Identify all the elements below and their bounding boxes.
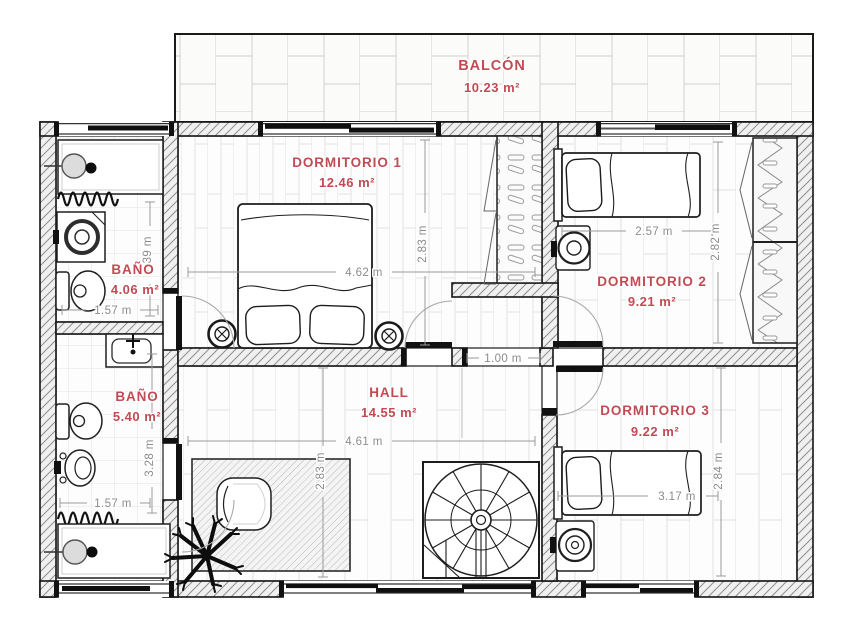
room-label-dormitorio3: DORMITORIO 3 bbox=[600, 403, 710, 418]
window-bathroom2 bbox=[54, 581, 174, 597]
balcony-door-dormitorio2 bbox=[596, 122, 737, 136]
drain-icon bbox=[87, 547, 98, 558]
headboard bbox=[554, 447, 562, 519]
wall-bottom-seg bbox=[170, 581, 283, 597]
floor-plan: 2.39 m 1.57 m 2.83 m 4.62 m 2.57 m 2.82 … bbox=[0, 0, 854, 626]
door-leaf bbox=[176, 296, 182, 350]
dimension-label: 2.83 m bbox=[315, 452, 327, 490]
balcony-door-dormitorio1 bbox=[258, 122, 441, 136]
door-leaf bbox=[553, 341, 603, 347]
wall-bath-vertical bbox=[163, 350, 178, 443]
dimension-label: 1.57 m bbox=[94, 305, 132, 317]
dimension-pasillo-width: 1.00 m bbox=[467, 353, 540, 365]
toilet-icon bbox=[56, 403, 102, 439]
chair bbox=[217, 478, 271, 530]
room-area-hall: 14.55 m² bbox=[361, 405, 417, 420]
headboard bbox=[554, 149, 562, 221]
dimension-label: 4.62 m bbox=[345, 267, 383, 279]
dimension-label: 1.57 m bbox=[94, 498, 132, 510]
wall-d1-hall-stub bbox=[540, 348, 553, 366]
bidet-icon bbox=[54, 450, 95, 486]
room-area-dormitorio3: 9.22 m² bbox=[631, 424, 679, 439]
dimension-label: 4.61 m bbox=[345, 436, 383, 448]
desk-chair-stool bbox=[551, 226, 590, 270]
door-leaf bbox=[556, 366, 603, 372]
wall-top-seg bbox=[733, 122, 813, 136]
wall-d1-hall bbox=[178, 348, 406, 366]
single-bed bbox=[554, 447, 701, 519]
room-area-bano1: 4.06 m² bbox=[111, 282, 159, 297]
bedside-stool bbox=[209, 321, 236, 348]
stool-icon bbox=[550, 521, 594, 571]
dimension-label: 3.17 m bbox=[658, 491, 696, 503]
pillow bbox=[566, 158, 603, 212]
spiral-staircase bbox=[423, 462, 539, 578]
wall-right bbox=[797, 122, 813, 597]
wall-closet-bottom bbox=[452, 283, 558, 297]
washing-machine-icon bbox=[53, 212, 105, 262]
dimension-label: 2.82 m bbox=[710, 223, 722, 261]
drain-icon bbox=[86, 163, 97, 174]
room-label-bano1: BAÑO bbox=[111, 262, 154, 277]
wall-left bbox=[40, 122, 56, 597]
room-label-bano2: BAÑO bbox=[115, 389, 158, 404]
pillow bbox=[245, 305, 300, 345]
room-label-balcon: BALCÓN bbox=[458, 56, 525, 74]
room-label-dormitorio1: DORMITORIO 1 bbox=[292, 155, 402, 170]
wall-bath-vertical bbox=[163, 122, 178, 293]
shower-icon bbox=[44, 524, 170, 578]
room-area-balcon: 10.23 m² bbox=[464, 80, 520, 95]
room-label-dormitorio2: DORMITORIO 2 bbox=[597, 274, 707, 289]
wall-d2-d3 bbox=[603, 348, 797, 366]
pillow bbox=[566, 456, 603, 510]
wall-top-seg bbox=[437, 122, 600, 136]
bedside-stool bbox=[376, 323, 403, 350]
room-area-dormitorio2: 9.21 m² bbox=[628, 294, 676, 309]
room-label-hall: HALL bbox=[369, 385, 409, 400]
dimension-label: 2.84 m bbox=[713, 452, 725, 490]
single-bed bbox=[554, 149, 700, 221]
pillow bbox=[309, 305, 364, 345]
sink-icon bbox=[106, 334, 163, 367]
dimension-label: 1.00 m bbox=[484, 353, 522, 365]
window-dormitorio3 bbox=[581, 581, 699, 597]
dimension-label: 3.28 m bbox=[144, 439, 156, 477]
room-area-dormitorio1: 12.46 m² bbox=[319, 175, 375, 190]
wall-bottom-seg bbox=[532, 581, 585, 597]
dimension-label: 2.83 m bbox=[417, 225, 429, 263]
wall-top-seg bbox=[170, 122, 262, 136]
room-area-bano2: 5.40 m² bbox=[113, 409, 161, 424]
balcony-floor bbox=[175, 34, 813, 122]
wall-bath-divider bbox=[56, 322, 163, 334]
wall-bottom-seg bbox=[695, 581, 813, 597]
shower-icon bbox=[44, 140, 163, 194]
floor-plan-canvas: 2.39 m 1.57 m 2.83 m 4.62 m 2.57 m 2.82 … bbox=[0, 0, 854, 626]
dimension-label: 2.57 m bbox=[635, 226, 673, 238]
window-bathroom1 bbox=[54, 122, 174, 136]
door-leaf bbox=[176, 444, 182, 500]
window-hall bbox=[279, 581, 536, 597]
